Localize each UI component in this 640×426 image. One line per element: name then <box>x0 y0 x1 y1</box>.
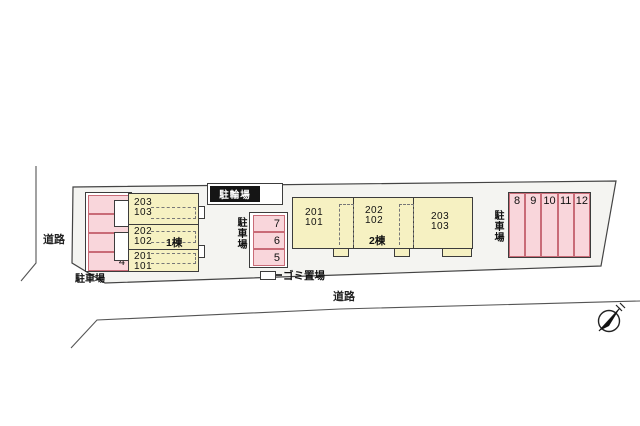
unit-lower: 102 <box>134 236 152 247</box>
north-compass-icon <box>599 303 626 332</box>
bicycle-parking-area: 駐輪場 <box>207 183 283 205</box>
building-1: 203 103 202 102 201 101 1棟 <box>128 193 199 272</box>
building1-name: 1棟 <box>166 235 182 250</box>
parking-space-6: 6 <box>253 232 285 249</box>
left-road-label: 道路 <box>43 231 65 247</box>
unit-lower: 102 <box>365 215 383 226</box>
site-plan: 道路 道路 駐輪場 1 2 3 4 駐車場 203 103 202 102 20… <box>0 0 640 426</box>
building2-name: 2棟 <box>369 233 385 248</box>
unit-lower: 101 <box>305 217 323 228</box>
parking-space-5: 5 <box>253 249 285 266</box>
parking-label-right: 駐車場 <box>492 210 503 252</box>
unit-lower: 103 <box>134 207 152 218</box>
parking-space-9: 9 <box>525 193 541 257</box>
parking-space-10: 10 <box>541 193 557 257</box>
parking-label-middle: 駐車場 <box>235 217 246 267</box>
building2-unit-2: 202 102 <box>365 206 383 226</box>
parking-area-right: 8 9 10 11 12 <box>508 192 591 258</box>
stairs-icon <box>151 253 196 264</box>
bottom-road-edge <box>71 301 640 348</box>
bicycle-parking-label: 駐輪場 <box>210 186 260 202</box>
stairs-icon <box>339 204 354 245</box>
parking-space-12: 12 <box>574 193 590 257</box>
parking-space-8: 8 <box>509 193 525 257</box>
parking-label-left: 駐車場 <box>75 270 105 285</box>
garbage-label: ゴミ置場 <box>283 268 325 283</box>
building1-porch <box>114 232 129 261</box>
parking-space-7: 7 <box>253 215 285 232</box>
unit-lower: 103 <box>431 221 449 232</box>
unit-divider <box>129 249 198 250</box>
unit-lower: 101 <box>134 261 152 272</box>
building2-unit-1: 201 101 <box>305 208 323 228</box>
building1-porch <box>114 200 129 227</box>
parking-space-11: 11 <box>558 193 574 257</box>
building1-unit-2: 202 102 <box>134 227 152 247</box>
stairs-icon <box>151 207 196 219</box>
building1-unit-3: 201 101 <box>134 252 152 272</box>
left-road-edge <box>21 166 36 281</box>
building1-unit-1: 203 103 <box>134 198 152 218</box>
stairs-icon <box>399 204 414 245</box>
garbage-connector <box>276 274 282 276</box>
building2-unit-3: 203 103 <box>431 212 449 232</box>
garbage-box <box>260 271 276 280</box>
unit-divider <box>129 224 198 225</box>
bottom-road-label: 道路 <box>333 288 355 304</box>
building-2: 201 101 202 102 203 103 2棟 <box>292 197 473 249</box>
